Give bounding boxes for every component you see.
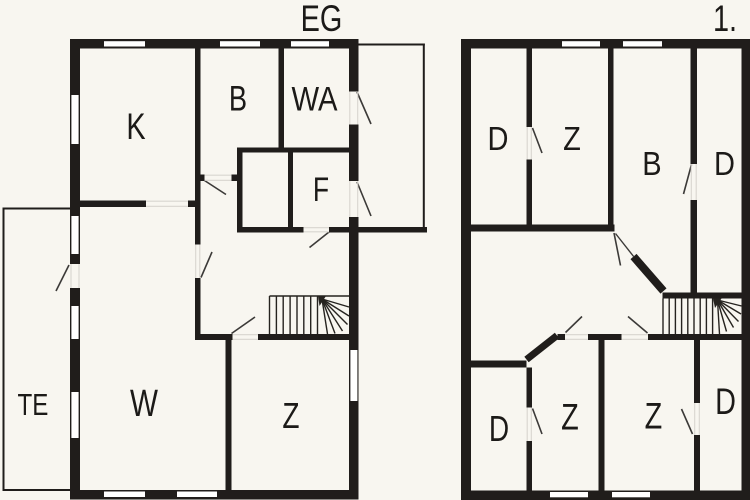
svg-text:WA: WA — [292, 79, 339, 118]
svg-text:Z: Z — [563, 120, 581, 157]
svg-text:D: D — [488, 120, 509, 157]
svg-text:1.: 1. — [713, 0, 737, 40]
svg-text:Z: Z — [282, 396, 299, 436]
svg-text:B: B — [642, 145, 661, 182]
svg-text:F: F — [313, 171, 329, 209]
svg-text:EG: EG — [301, 0, 343, 40]
svg-text:TE: TE — [18, 387, 49, 422]
svg-text:Z: Z — [645, 396, 663, 437]
svg-text:B: B — [229, 79, 247, 118]
svg-text:D: D — [489, 409, 509, 449]
svg-text:D: D — [715, 382, 736, 423]
svg-text:D: D — [714, 145, 735, 182]
svg-text:Z: Z — [561, 397, 579, 438]
svg-text:K: K — [126, 107, 145, 148]
svg-text:W: W — [130, 383, 159, 425]
